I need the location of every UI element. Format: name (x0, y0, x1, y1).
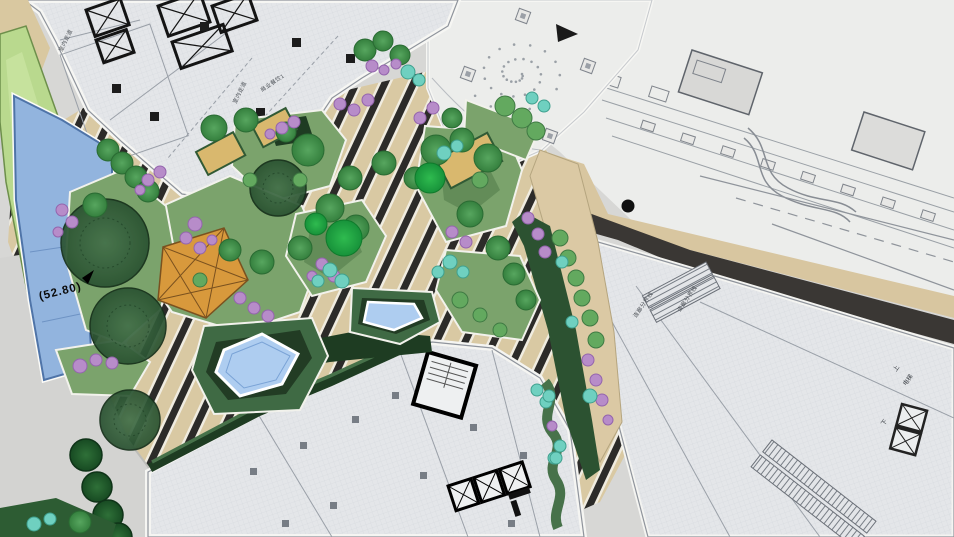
site-plan-drawing: 连廊分界线 连廊分界线 电梯 上 下 商业餐饮1 室内走道 室内走道 (0, 0, 954, 537)
wall-end-dot (622, 200, 635, 213)
site-plan-canvas: 连廊分界线 连廊分界线 电梯 上 下 商业餐饮1 室内走道 室内走道 (0, 0, 954, 537)
